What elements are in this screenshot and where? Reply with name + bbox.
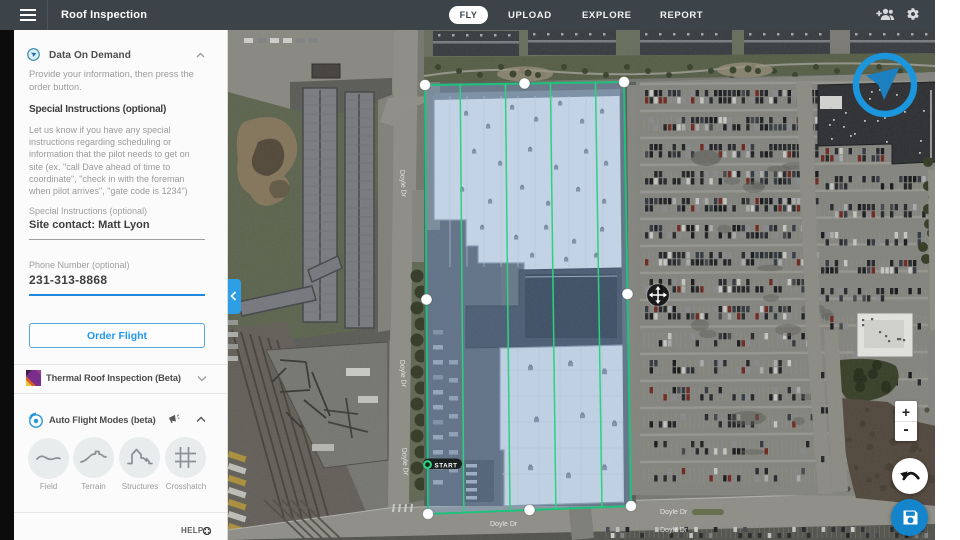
svg-text:Doyle Dr: Doyle Dr	[490, 521, 518, 528]
svg-text:Doyle Dr: Doyle Dr	[660, 527, 688, 534]
svg-text:Doyle Dr: Doyle Dr	[660, 509, 688, 516]
svg-text:START: START	[435, 462, 458, 469]
